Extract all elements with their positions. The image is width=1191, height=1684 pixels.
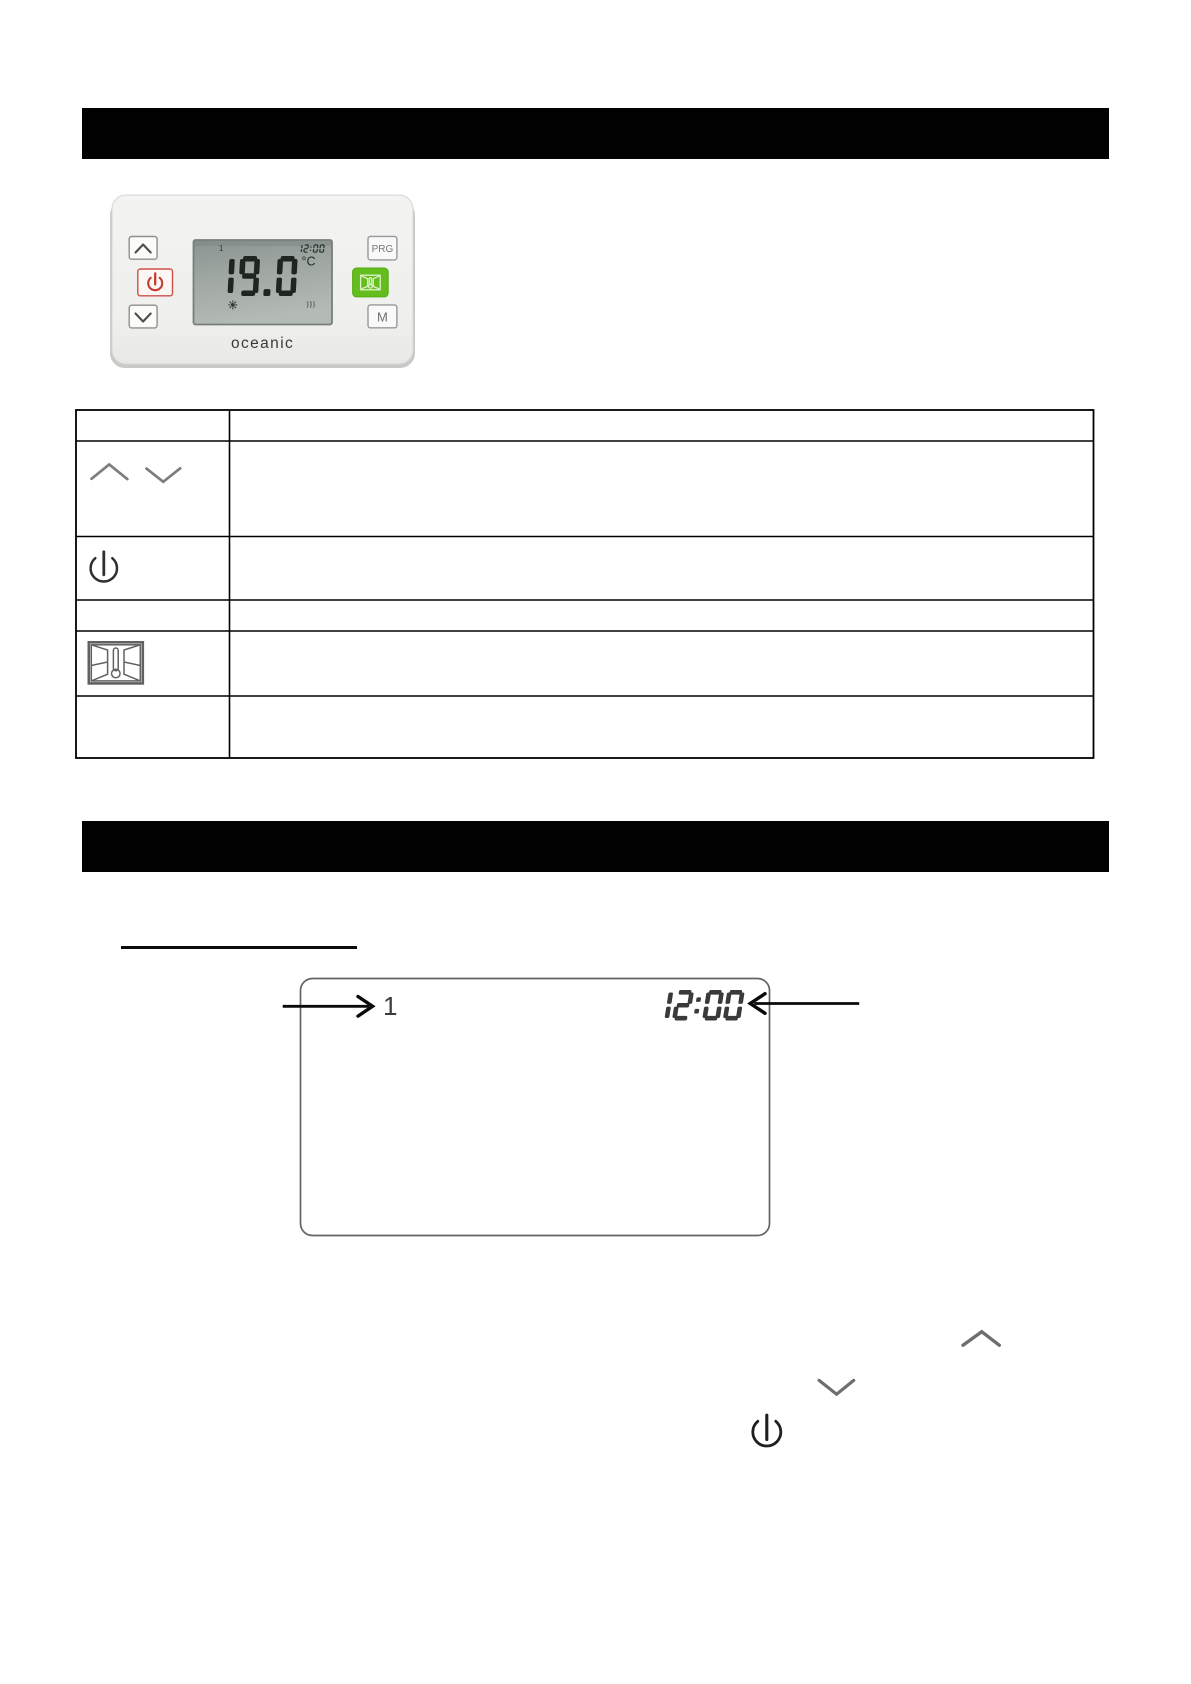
svg-text:1: 1 [219, 244, 223, 253]
svg-text:°C: °C [302, 255, 316, 269]
svg-text:M: M [377, 310, 388, 325]
svg-text:PRG: PRG [372, 244, 394, 255]
svg-text:1: 1 [383, 991, 397, 1021]
svg-text:oceanic: oceanic [231, 335, 294, 352]
